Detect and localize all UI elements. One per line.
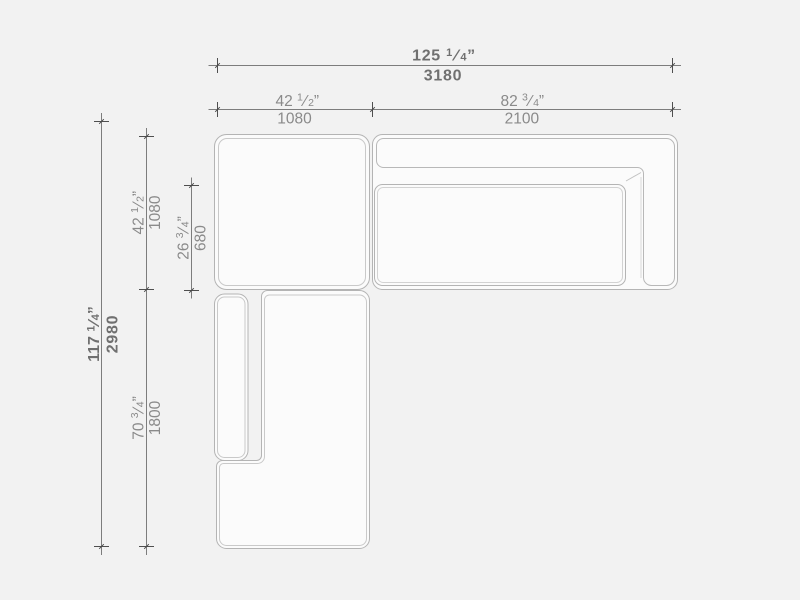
svg-text:3180: 3180 bbox=[424, 67, 462, 84]
svg-text:680: 680 bbox=[192, 225, 209, 251]
svg-text:2980: 2980 bbox=[105, 315, 122, 353]
svg-text:1080: 1080 bbox=[277, 111, 312, 128]
svg-text:1800: 1800 bbox=[147, 400, 164, 435]
svg-text:125 1 ⁄ 4”: 125 1 ⁄ 4” bbox=[412, 47, 476, 65]
svg-text:1080: 1080 bbox=[147, 195, 164, 230]
svg-text:117 1 ⁄ 4”: 117 1 ⁄ 4” bbox=[85, 306, 103, 362]
svg-text:2100: 2100 bbox=[505, 111, 540, 128]
